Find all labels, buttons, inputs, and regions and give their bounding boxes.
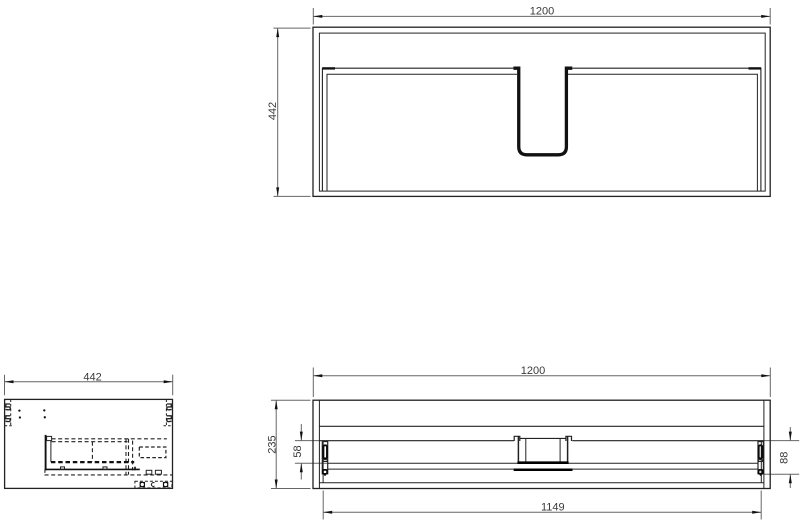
svg-text:1149: 1149: [541, 501, 565, 513]
svg-text:442: 442: [83, 372, 101, 384]
svg-text:58: 58: [292, 445, 304, 457]
svg-text:1200: 1200: [521, 365, 545, 377]
svg-text:442: 442: [267, 102, 279, 120]
svg-text:1200: 1200: [530, 6, 554, 18]
svg-text:88: 88: [779, 452, 791, 464]
svg-text:235: 235: [267, 435, 279, 453]
